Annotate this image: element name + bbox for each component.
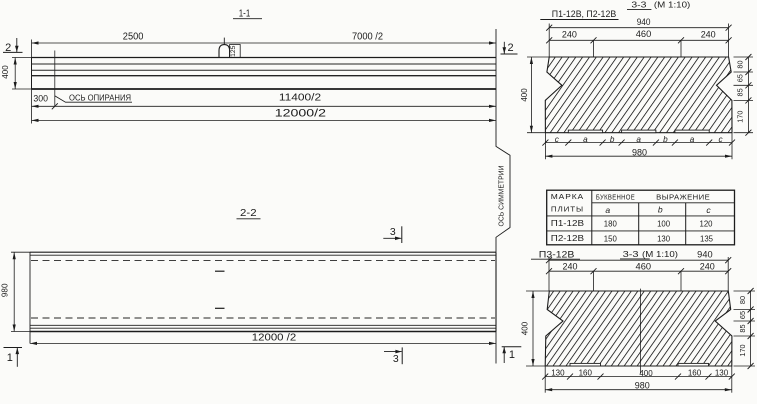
svg-text:125: 125 [230,45,237,57]
svg-text:1-1: 1-1 [239,8,251,19]
svg-text:80: 80 [738,296,747,304]
svg-text:П2-12В: П2-12В [551,234,584,243]
svg-text:135: 135 [700,234,714,243]
svg-text:940: 940 [637,17,651,27]
svg-text:460: 460 [636,262,652,272]
svg-text:240: 240 [701,29,716,39]
svg-text:1: 1 [7,352,13,364]
svg-text:12000 /2: 12000 /2 [252,332,296,343]
svg-text:c: c [719,135,723,144]
svg-text:П1-12В, П2-12В: П1-12В, П2-12В [552,9,616,19]
svg-text:3: 3 [393,353,399,365]
svg-text:65: 65 [738,311,747,319]
svg-text:65: 65 [736,74,745,82]
svg-text:П3-12В: П3-12В [539,249,575,259]
svg-text:ПЛИТЫ: ПЛИТЫ [551,204,584,213]
svg-text:a: a [605,205,610,215]
svg-text:400: 400 [1,65,10,79]
svg-text:ВЫРАЖЕНИЕ: ВЫРАЖЕНИЕ [656,192,710,201]
svg-text:400: 400 [639,369,653,378]
svg-text:400: 400 [520,88,529,102]
svg-text:a: a [690,135,695,144]
svg-text:980: 980 [635,380,650,390]
svg-text:7000 /2: 7000 /2 [352,31,383,42]
svg-text:ОСЬ СИММЕТРИИ: ОСЬ СИММЕТРИИ [496,166,505,227]
svg-text:160: 160 [688,368,702,377]
svg-text:3: 3 [390,226,396,238]
svg-text:c: c [706,205,711,215]
svg-text:980: 980 [632,147,647,157]
svg-text:a: a [583,135,588,144]
svg-text:12000/2: 12000/2 [275,108,326,120]
svg-text:120: 120 [699,219,713,228]
svg-text:130: 130 [657,234,671,243]
svg-text:b: b [610,135,615,144]
svg-text:150: 150 [604,234,618,243]
svg-text:2500: 2500 [123,31,144,42]
svg-text:100: 100 [657,219,671,228]
svg-text:170: 170 [738,344,747,356]
svg-text:МАРКА: МАРКА [551,192,584,201]
svg-text:170: 170 [736,111,745,123]
svg-text:85: 85 [738,324,747,332]
svg-text:240: 240 [562,29,577,39]
svg-text:940: 940 [697,250,712,260]
svg-text:130: 130 [715,368,729,377]
svg-text:980: 980 [0,283,10,297]
svg-text:240: 240 [563,262,578,272]
svg-text:300: 300 [33,94,48,105]
svg-text:БУКВЕННОЕ: БУКВЕННОЕ [596,192,635,201]
svg-text:(М 1:10): (М 1:10) [654,0,691,10]
svg-text:130: 130 [551,368,565,377]
svg-text:b: b [658,205,663,215]
svg-text:460: 460 [636,29,652,39]
svg-text:b: b [663,135,668,144]
svg-text:400: 400 [521,321,530,335]
svg-text:85: 85 [736,88,745,96]
svg-text:3-3: 3-3 [631,0,646,10]
svg-text:a: a [636,135,641,144]
svg-text:2: 2 [507,42,513,54]
svg-text:160: 160 [579,368,593,377]
svg-text:(М 1:10): (М 1:10) [642,249,678,259]
svg-text:240: 240 [700,262,715,272]
svg-text:3-3: 3-3 [623,249,639,259]
svg-text:80: 80 [736,60,745,68]
svg-text:П1-12В: П1-12В [551,219,584,228]
svg-text:1: 1 [509,349,515,361]
svg-text:ОСЬ ОПИРАНИЯ: ОСЬ ОПИРАНИЯ [69,93,131,102]
svg-text:180: 180 [604,219,618,228]
svg-text:2-2: 2-2 [240,208,257,219]
svg-text:c: c [555,135,559,144]
svg-text:11400/2: 11400/2 [279,91,321,103]
